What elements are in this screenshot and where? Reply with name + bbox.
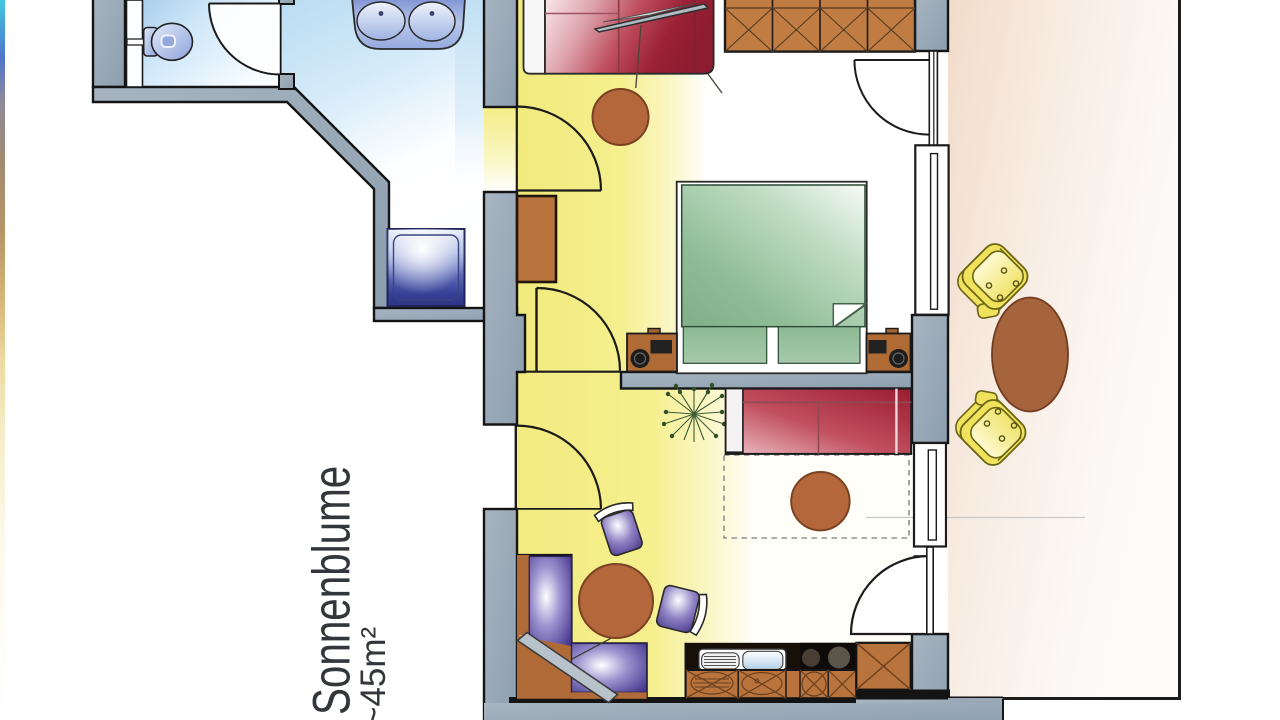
svg-text:Sonnenblume: Sonnenblume <box>301 466 361 715</box>
svg-text:~45m²: ~45m² <box>354 627 393 720</box>
